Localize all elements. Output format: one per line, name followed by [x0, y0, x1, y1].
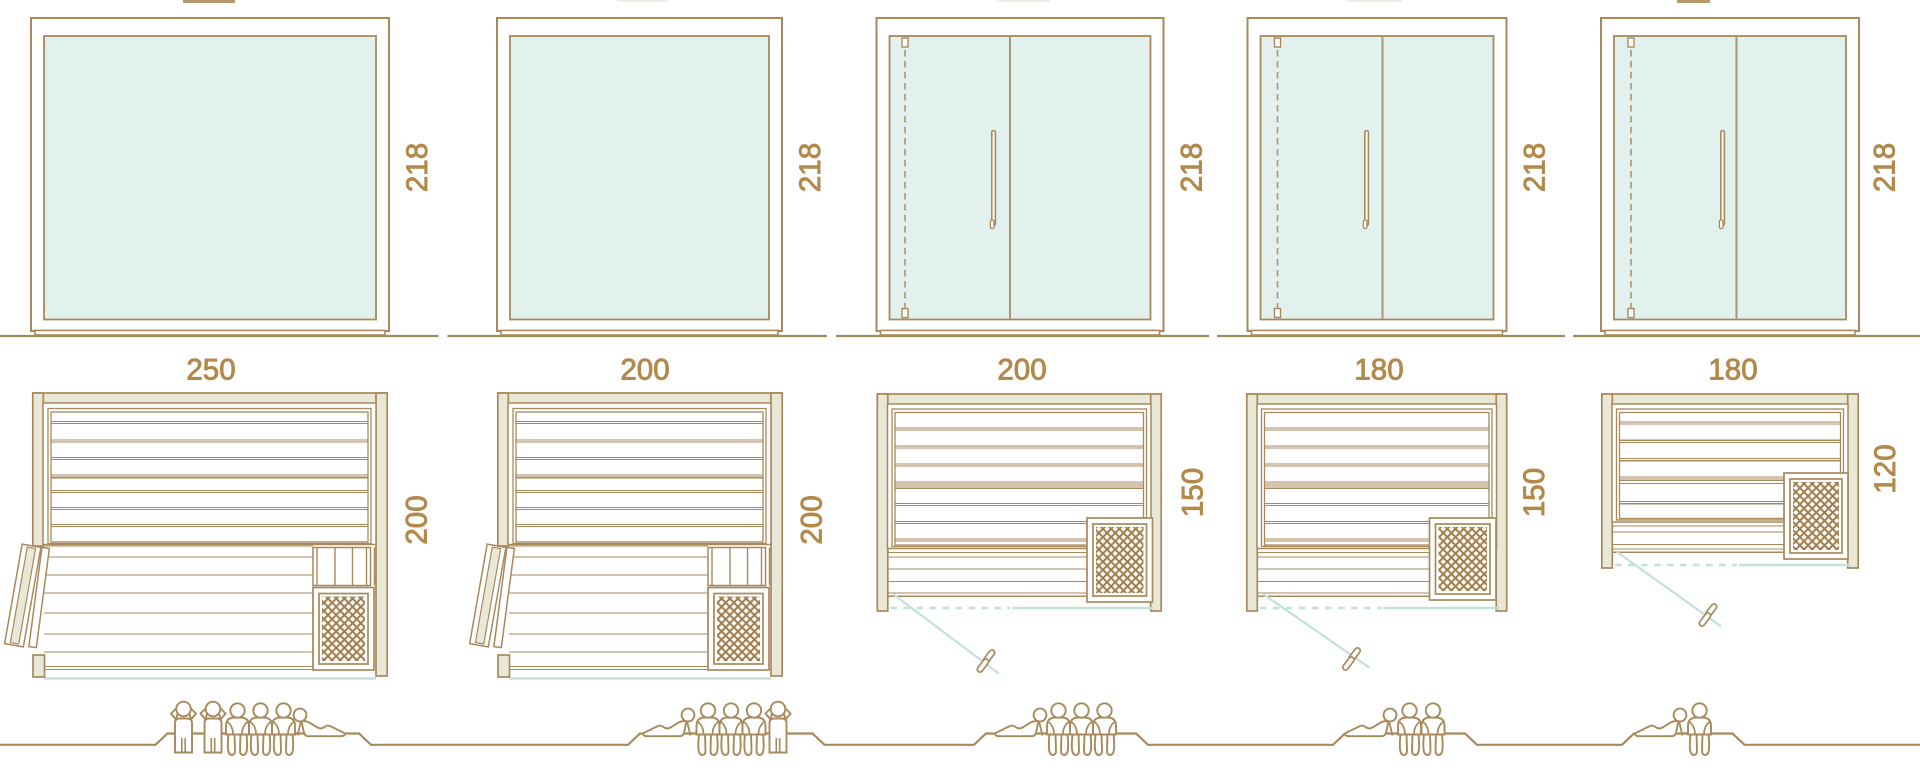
svg-text:120: 120 — [1869, 444, 1902, 493]
svg-text:200: 200 — [620, 354, 669, 387]
svg-text:250: 250 — [186, 354, 235, 387]
svg-text:218: 218 — [794, 143, 827, 192]
svg-text:200: 200 — [796, 495, 829, 544]
svg-text:180: 180 — [1708, 354, 1757, 387]
svg-text:150: 150 — [1177, 468, 1210, 517]
svg-text:218: 218 — [1176, 143, 1209, 192]
svg-text:218: 218 — [401, 143, 434, 192]
svg-text:150: 150 — [1518, 468, 1551, 517]
svg-text:200: 200 — [401, 495, 434, 544]
svg-text:218: 218 — [1519, 143, 1552, 192]
svg-text:180: 180 — [1354, 354, 1403, 387]
svg-text:218: 218 — [1869, 143, 1902, 192]
svg-text:200: 200 — [997, 354, 1046, 387]
